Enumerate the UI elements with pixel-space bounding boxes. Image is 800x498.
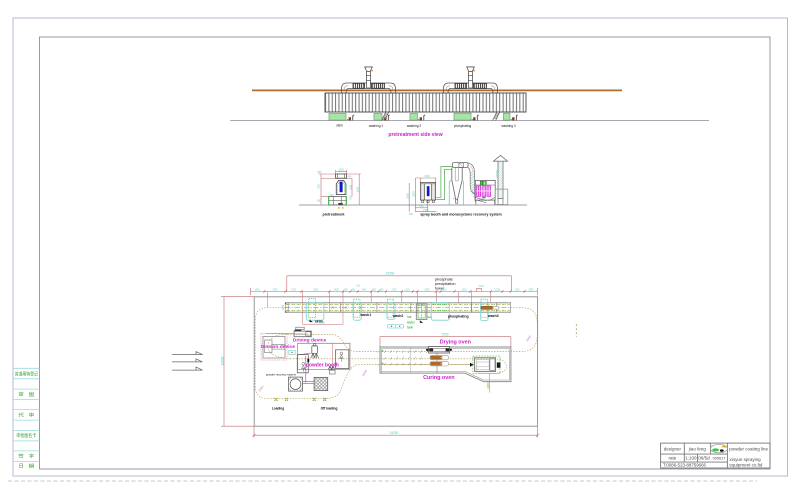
svg-text:1700: 1700: [478, 286, 484, 288]
svg-text:pretreatment: pretreatment: [323, 212, 346, 216]
svg-text:1500: 1500: [424, 175, 430, 178]
svg-text:1500: 1500: [254, 289, 260, 291]
svg-text:650: 650: [409, 213, 414, 216]
svg-text:2900: 2900: [528, 289, 534, 291]
svg-text:Off loading: Off loading: [321, 406, 338, 410]
svg-text:phosphate: phosphate: [435, 278, 453, 282]
svg-text:A-B: A-B: [356, 285, 360, 288]
svg-text:skim: skim: [336, 124, 343, 128]
svg-text:pretreatment side view: pretreatment side view: [388, 132, 442, 138]
svg-text:3200: 3200: [356, 186, 359, 192]
svg-text:wash1: wash1: [359, 313, 371, 317]
svg-text:550: 550: [420, 205, 425, 208]
svg-text:wash3: wash3: [487, 314, 499, 318]
svg-text:1200: 1200: [404, 289, 410, 291]
svg-text:15000: 15000: [495, 170, 499, 178]
svg-text:1700: 1700: [391, 289, 397, 291]
svg-text:12000: 12000: [221, 356, 225, 365]
svg-text:900: 900: [348, 176, 353, 179]
svg-text:hot: hot: [407, 315, 412, 319]
svg-text:4500: 4500: [441, 289, 447, 291]
svg-text:2050: 2050: [424, 289, 430, 291]
svg-text:750: 750: [350, 195, 353, 200]
svg-text:xinyue spraying: xinyue spraying: [729, 457, 761, 462]
svg-text:250: 250: [317, 171, 322, 174]
svg-text:代 审: 代 审: [18, 412, 34, 419]
svg-text:Driving device: Driving device: [293, 337, 327, 343]
svg-text:(2200): (2200): [494, 289, 501, 291]
svg-text:1750: 1750: [318, 184, 321, 190]
svg-text:2250: 2250: [272, 289, 278, 291]
svg-text:tension device: tension device: [261, 344, 295, 350]
svg-text:1:100: 1:100: [685, 456, 697, 461]
svg-text:1700: 1700: [291, 289, 297, 291]
svg-text:phosphating: phosphating: [454, 124, 472, 128]
svg-text:1250: 1250: [514, 289, 520, 291]
svg-text:jiao feng: jiao feng: [688, 446, 707, 451]
svg-text:1445: 1445: [361, 289, 367, 291]
svg-text:1000: 1000: [338, 169, 344, 172]
svg-text:powder booth: powder booth: [306, 362, 339, 368]
svg-text:tank: tank: [407, 326, 413, 330]
svg-text:spray booth and monocyclone re: spray booth and monocyclone recovery sys…: [420, 212, 502, 216]
svg-text:24250: 24250: [390, 431, 399, 435]
svg-text:24250: 24250: [386, 272, 395, 276]
svg-text:1500: 1500: [461, 289, 467, 291]
svg-text:Loading: Loading: [272, 406, 284, 410]
svg-text:washing 3: washing 3: [501, 124, 516, 128]
svg-text:1450: 1450: [334, 289, 340, 291]
svg-text:3500: 3500: [413, 191, 416, 197]
svg-text:7500: 7500: [441, 332, 448, 336]
svg-text:005617: 005617: [713, 457, 726, 461]
svg-text:2500: 2500: [407, 193, 410, 199]
svg-text:3000: 3000: [486, 382, 490, 389]
svg-text:06/5d: 06/5d: [698, 456, 710, 461]
svg-text:签 字: 签 字: [18, 453, 34, 459]
svg-text:phosphating: phosphating: [448, 314, 469, 318]
svg-text:washing 1: washing 1: [369, 124, 384, 128]
svg-text:water: water: [407, 320, 416, 324]
svg-text:3000: 3000: [313, 289, 319, 291]
svg-text:审 图: 审 图: [18, 391, 34, 398]
svg-text:Drying oven: Drying oven: [440, 340, 471, 346]
svg-text:skim: skim: [315, 319, 323, 323]
svg-text:wash2: wash2: [392, 314, 404, 318]
svg-text:1250: 1250: [350, 184, 353, 190]
svg-text:审批图名卡: 审批图名卡: [16, 432, 36, 439]
svg-text:powder recovery system: powder recovery system: [266, 372, 297, 376]
svg-text:equipment co.ltd: equipment co.ltd: [729, 462, 763, 467]
svg-text:powder coating line: powder coating line: [729, 446, 768, 451]
svg-text:1250: 1250: [281, 304, 285, 310]
svg-text:普通用特登记: 普通用特登记: [15, 370, 38, 377]
svg-text:washing 2: washing 2: [407, 124, 422, 128]
svg-text:T:0086-523-88759666: T:0086-523-88759666: [663, 463, 707, 468]
svg-text:750: 750: [330, 194, 335, 197]
svg-text:Curing oven: Curing oven: [423, 375, 454, 381]
svg-text:850: 850: [317, 200, 322, 203]
svg-text:rate: rate: [669, 456, 677, 461]
svg-text:designer: designer: [664, 446, 682, 451]
